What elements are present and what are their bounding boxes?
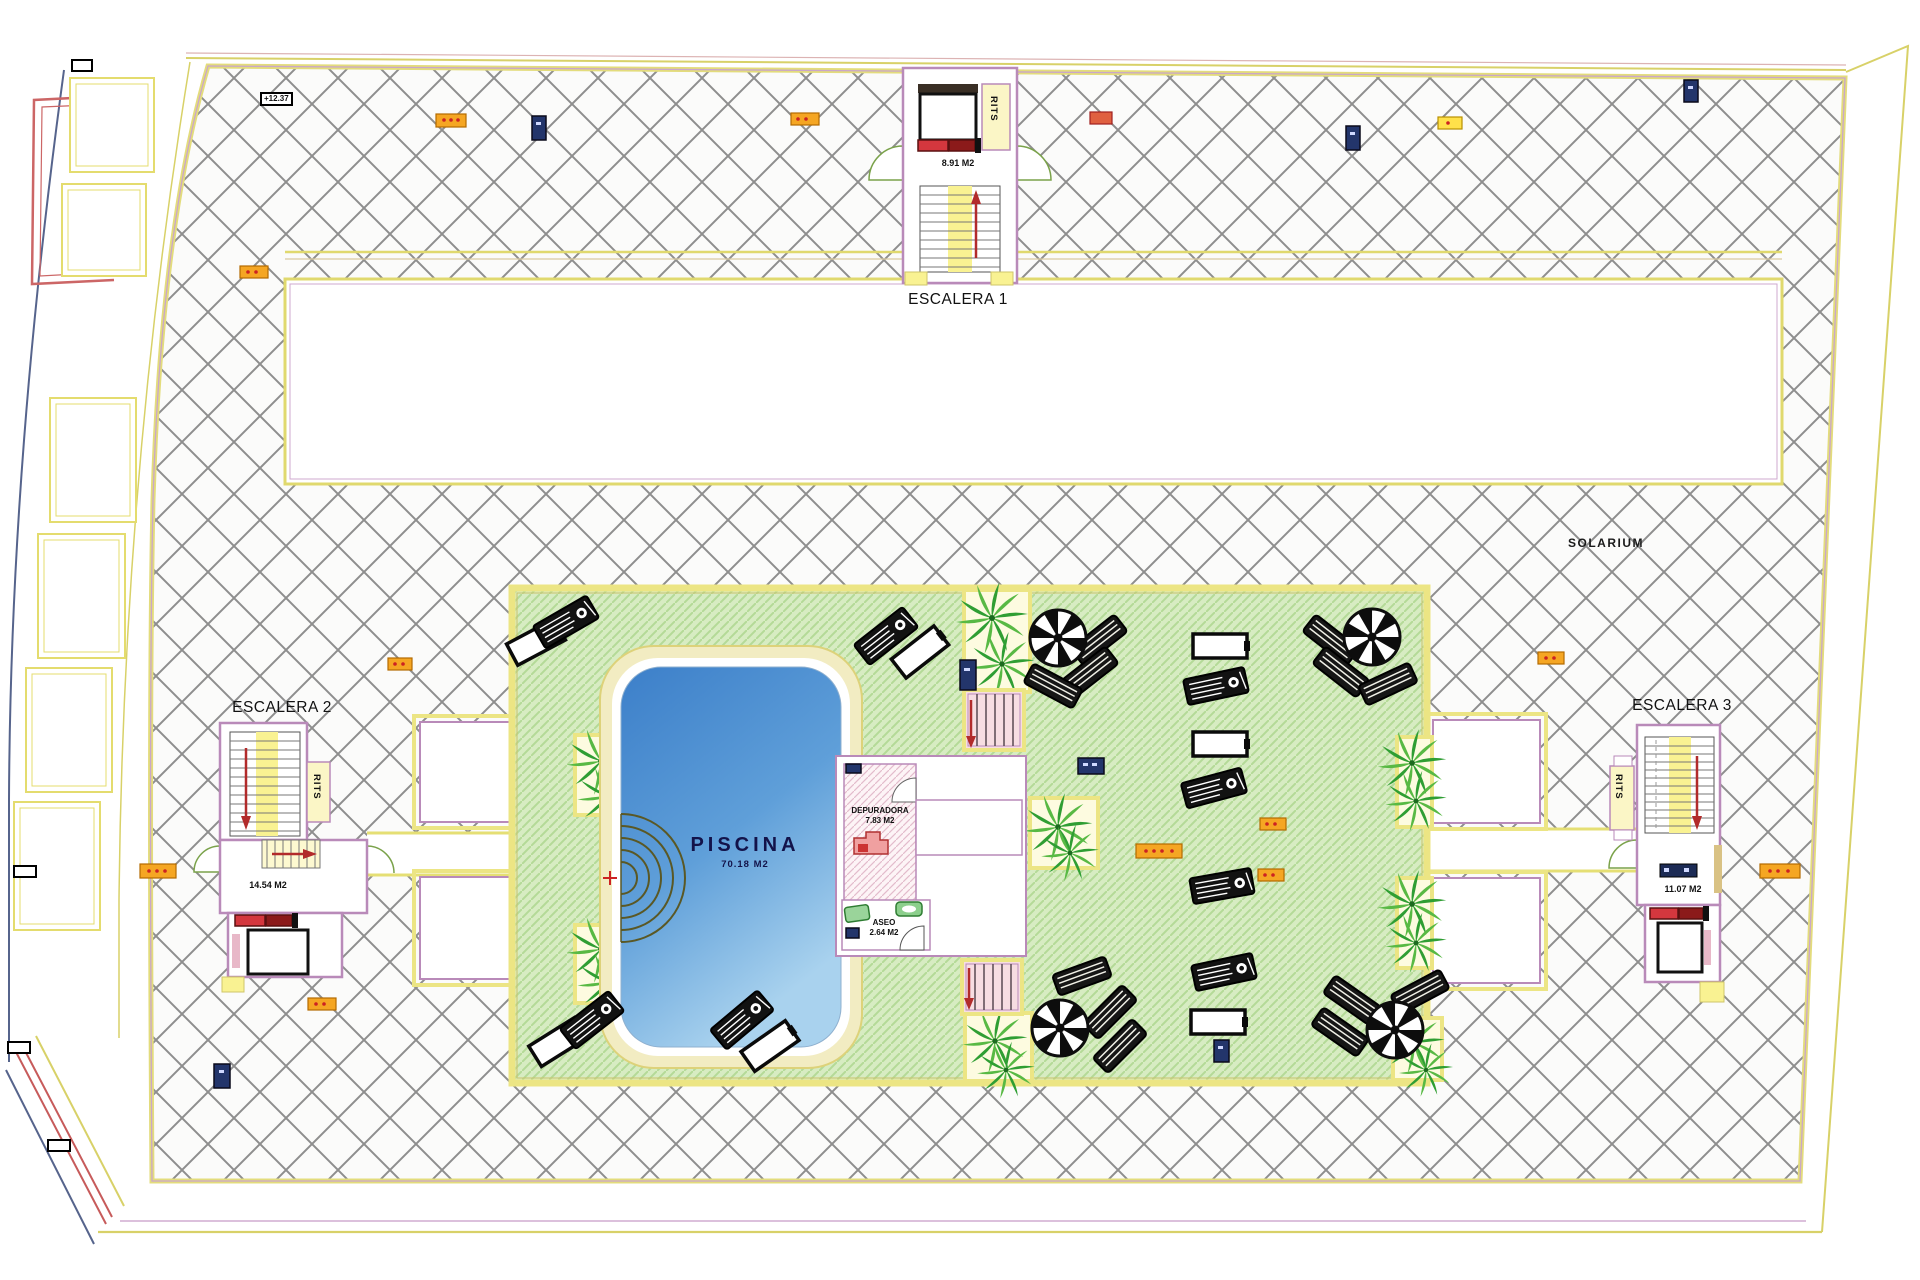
pool-area: 70.18 M2	[655, 859, 835, 870]
depuradora-area: 7.83 M2	[866, 816, 895, 825]
elevator-1	[920, 94, 976, 140]
elevator-3	[1658, 923, 1702, 972]
rits-label-2: RITS	[311, 774, 322, 800]
elevator-2	[248, 930, 308, 974]
stair1-title: ESCALERA 1	[900, 291, 1016, 309]
depuradora-name: DEPURADORA	[851, 806, 908, 815]
courtyard-void	[285, 279, 1782, 484]
pool-label: PISCINA 70.18 M2	[655, 834, 835, 870]
stair3-area: 11.07 M2	[1645, 884, 1721, 894]
stair3-title: ESCALERA 3	[1620, 697, 1744, 715]
stair1-area: 8.91 M2	[920, 158, 996, 168]
aseo-name: ASEO	[873, 918, 896, 927]
stair2-area: 14.54 M2	[230, 880, 306, 890]
pool-name: PISCINA	[655, 834, 835, 857]
stair-run-1	[920, 186, 1000, 272]
aseo-label: ASEO 2.64 M2	[856, 918, 912, 938]
floor-plan-canvas: ESCALERA 1 ESCALERA 2 ESCALERA 3 SOLARIU…	[0, 0, 1920, 1280]
solarium-label: SOLARIUM	[1568, 536, 1644, 550]
level-marker: +12.37	[260, 92, 293, 106]
floor-plan-drawing	[0, 0, 1920, 1280]
depuradora-label: DEPURADORA 7.83 M2	[841, 806, 919, 826]
rits-label-1: RITS	[988, 96, 999, 122]
stair-run-3	[1645, 737, 1714, 833]
stair2-title: ESCALERA 2	[222, 699, 342, 717]
rits-label-3: RITS	[1613, 774, 1624, 800]
aseo-area: 2.64 M2	[870, 928, 899, 937]
left-terraces	[14, 78, 154, 930]
